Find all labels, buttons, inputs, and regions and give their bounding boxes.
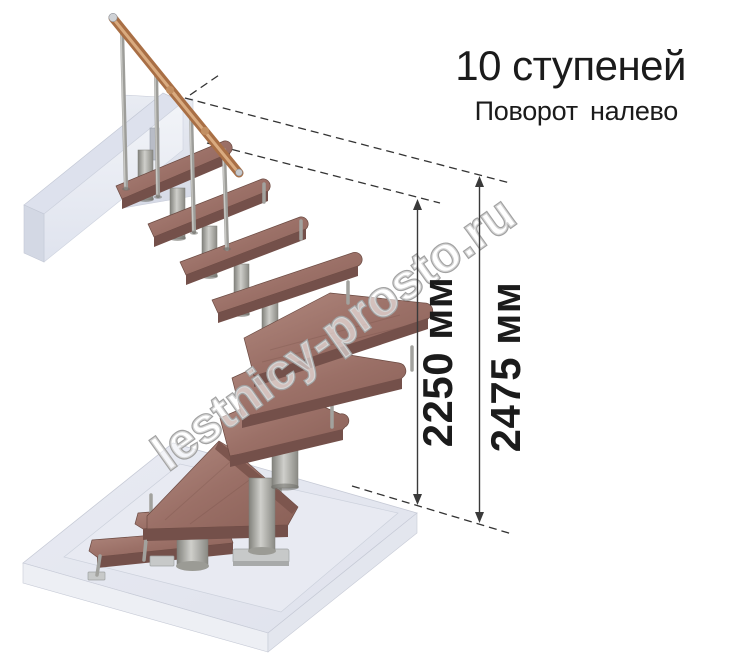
header: 10 ступеней Поворот налево bbox=[455, 44, 686, 127]
diagram-canvas: lestnicy-prosto.ru 2250 мм 2475 мм 10 ст… bbox=[0, 0, 744, 655]
handrail-end-cap bbox=[109, 13, 117, 21]
page-subtitle: Поворот налево bbox=[455, 97, 678, 127]
arrow-up-icon bbox=[475, 176, 484, 187]
handrail-joint bbox=[166, 86, 174, 94]
dimension-label-2475: 2475 мм bbox=[482, 282, 529, 453]
base-plate bbox=[150, 556, 174, 566]
handrail-joint bbox=[201, 127, 209, 135]
arrow-up-icon bbox=[413, 199, 422, 210]
arrow-down-icon bbox=[475, 512, 484, 523]
dimension-label-2250: 2250 мм bbox=[414, 277, 461, 448]
page-title: 10 ступеней bbox=[455, 44, 686, 88]
arrow-down-icon bbox=[413, 494, 422, 505]
handrail-end-cap bbox=[236, 169, 243, 176]
